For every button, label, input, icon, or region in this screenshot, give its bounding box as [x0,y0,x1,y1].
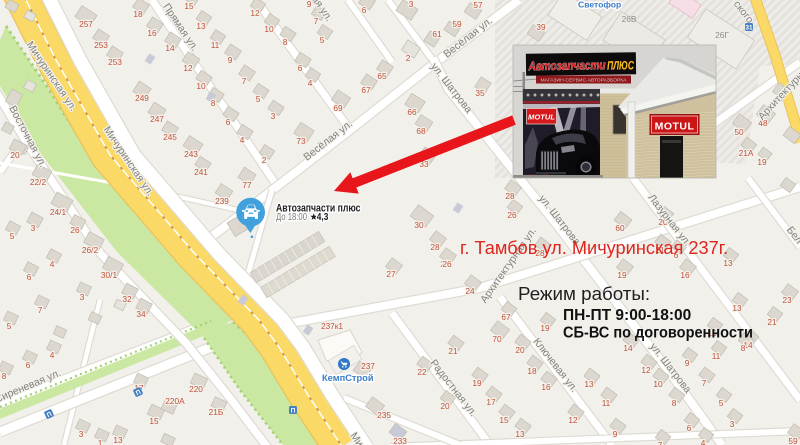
svg-text:22/2: 22/2 [30,177,47,187]
svg-text:ПЛЮС: ПЛЮС [607,58,634,72]
svg-text:77: 77 [242,180,252,190]
svg-text:П: П [291,408,296,415]
svg-text:26: 26 [507,210,517,220]
svg-text:10: 10 [653,379,663,389]
svg-text:Светофор: Светофор [578,0,621,10]
svg-text:8: 8 [2,371,7,381]
svg-text:3: 3 [730,419,735,429]
svg-text:21: 21 [448,346,458,356]
svg-text:22: 22 [417,367,427,377]
svg-text:3: 3 [31,223,36,233]
svg-text:249: 249 [135,93,149,103]
svg-text:ПН-ПТ 9:00-18:00: ПН-ПТ 9:00-18:00 [563,307,691,324]
svg-text:7: 7 [658,440,663,445]
svg-text:5: 5 [719,398,724,408]
svg-text:18: 18 [527,366,537,376]
svg-text:21Б: 21Б [209,407,224,417]
svg-text:До 18:00: До 18:00 [276,212,307,223]
svg-text:7: 7 [38,305,43,315]
svg-text:3: 3 [271,111,276,121]
svg-text:235: 235 [377,410,391,420]
svg-text:233: 233 [393,436,407,445]
svg-text:26: 26 [442,259,452,269]
svg-text:MOTUL: MOTUL [655,121,695,133]
svg-text:6: 6 [687,423,692,433]
svg-text:г. Тамбов ул. Мичуринская 237г: г. Тамбов ул. Мичуринская 237г. [460,238,728,258]
svg-text:18: 18 [133,9,143,19]
svg-text:8: 8 [211,98,216,108]
svg-text:73: 73 [296,136,306,146]
svg-text:39: 39 [536,22,546,32]
svg-text:2: 2 [406,53,411,63]
svg-text:68: 68 [416,126,426,136]
svg-text:5: 5 [7,321,12,331]
svg-text:13: 13 [584,379,594,389]
svg-text:19: 19 [757,157,767,167]
svg-text:20: 20 [515,345,525,355]
svg-text:69: 69 [333,103,343,113]
svg-text:241: 241 [194,167,208,177]
svg-text:12: 12 [641,365,651,375]
svg-text:19: 19 [472,378,482,388]
svg-text:60: 60 [615,223,625,233]
svg-text:257: 257 [79,19,93,29]
svg-text:6: 6 [362,5,367,15]
svg-text:МАГАЗИН·СЕРВИС·АВТОРАЗБОРКА: МАГАЗИН·СЕРВИС·АВТОРАЗБОРКА [541,77,627,82]
svg-text:26/2: 26/2 [82,245,99,255]
svg-text:67: 67 [361,85,371,95]
svg-text:28: 28 [430,242,440,252]
svg-text:239: 239 [215,196,229,206]
svg-text:13: 13 [196,21,206,31]
svg-text:220: 220 [189,384,203,394]
svg-text:27: 27 [386,269,396,279]
svg-text:11: 11 [211,40,220,50]
svg-text:245: 245 [163,132,177,142]
svg-text:247: 247 [150,114,164,124]
svg-text:61: 61 [432,29,442,39]
svg-text:7: 7 [242,76,247,86]
svg-text:5: 5 [10,231,15,241]
svg-text:26: 26 [70,225,80,235]
svg-text:6: 6 [26,360,31,370]
svg-text:5: 5 [256,94,261,104]
svg-text:6: 6 [27,272,32,282]
svg-text:57: 57 [473,0,483,10]
svg-text:16: 16 [541,382,551,392]
svg-text:20: 20 [10,150,20,160]
svg-text:24: 24 [465,286,475,296]
svg-text:26В: 26В [622,14,637,24]
svg-text:34: 34 [136,309,146,319]
svg-text:10: 10 [196,81,206,91]
svg-text:237: 237 [361,361,375,371]
svg-text:50: 50 [734,127,744,137]
svg-text:31: 31 [745,25,753,32]
svg-text:4,3: 4,3 [317,212,329,223]
svg-text:19: 19 [540,323,550,333]
svg-text:70: 70 [492,334,502,344]
svg-text:15: 15 [149,416,159,426]
svg-text:243: 243 [184,149,198,159]
svg-text:4: 4 [50,350,55,360]
svg-text:21А: 21А [739,148,754,158]
svg-text:253: 253 [94,40,108,50]
svg-text:8: 8 [672,398,677,408]
svg-text:14: 14 [623,343,633,353]
svg-text:12: 12 [568,415,578,425]
svg-text:Автозапчасти: Автозапчасти [528,58,606,73]
svg-text:20: 20 [440,401,450,411]
svg-text:7: 7 [314,16,319,26]
svg-text:11: 11 [602,398,611,408]
svg-text:13: 13 [732,303,742,313]
svg-text:8: 8 [283,37,288,47]
svg-text:21: 21 [767,317,777,327]
svg-text:13: 13 [113,435,123,445]
svg-text:17: 17 [486,397,496,407]
svg-text:4: 4 [308,78,313,88]
svg-text:16: 16 [147,28,157,38]
svg-text:237к1: 237к1 [321,321,343,331]
svg-text:9: 9 [228,55,233,65]
svg-text:СБ-ВС по договоренности: СБ-ВС по договоренности [563,325,753,342]
svg-text:13: 13 [723,258,733,268]
svg-text:3: 3 [409,0,414,9]
svg-text:35: 35 [475,88,485,98]
svg-text:7: 7 [702,378,707,388]
svg-text:28: 28 [505,191,515,201]
svg-text:14: 14 [165,43,175,53]
svg-text:6: 6 [226,117,231,127]
svg-text:Режим работы:: Режим работы: [518,283,650,304]
svg-text:30/1: 30/1 [101,270,118,280]
svg-text:8: 8 [741,343,746,353]
svg-text:26Г: 26Г [715,30,729,40]
svg-text:3: 3 [79,429,84,439]
svg-text:16: 16 [680,270,690,280]
svg-text:5: 5 [320,35,325,45]
svg-text:КемпСтрой: КемпСтрой [322,373,374,383]
svg-text:MOTUL: MOTUL [528,113,555,122]
svg-text:4: 4 [701,438,706,445]
svg-text:2: 2 [262,155,267,165]
svg-text:59: 59 [452,19,462,29]
svg-text:9: 9 [685,358,690,368]
svg-text:4: 4 [240,135,245,145]
svg-text:23: 23 [782,295,792,305]
svg-text:65: 65 [377,71,387,81]
svg-text:6: 6 [298,63,303,73]
svg-text:10: 10 [264,24,274,34]
svg-text:32: 32 [122,294,132,304]
svg-text:12: 12 [183,63,193,73]
svg-text:4: 4 [50,259,55,269]
svg-text:30: 30 [414,220,424,230]
svg-text:9: 9 [613,429,618,439]
svg-text:67: 67 [501,312,511,322]
svg-text:13: 13 [515,429,525,439]
svg-text:220А: 220А [165,396,185,406]
svg-text:3: 3 [80,292,85,302]
svg-text:66: 66 [407,107,417,117]
svg-text:59: 59 [788,436,798,445]
svg-text:253: 253 [108,57,122,67]
svg-text:24/1: 24/1 [50,207,67,217]
svg-text:1: 1 [98,438,103,445]
svg-text:12: 12 [250,8,260,18]
svg-text:19: 19 [617,270,627,280]
svg-text:15: 15 [499,415,509,425]
svg-text:15: 15 [184,1,194,11]
svg-text:11: 11 [712,351,721,361]
